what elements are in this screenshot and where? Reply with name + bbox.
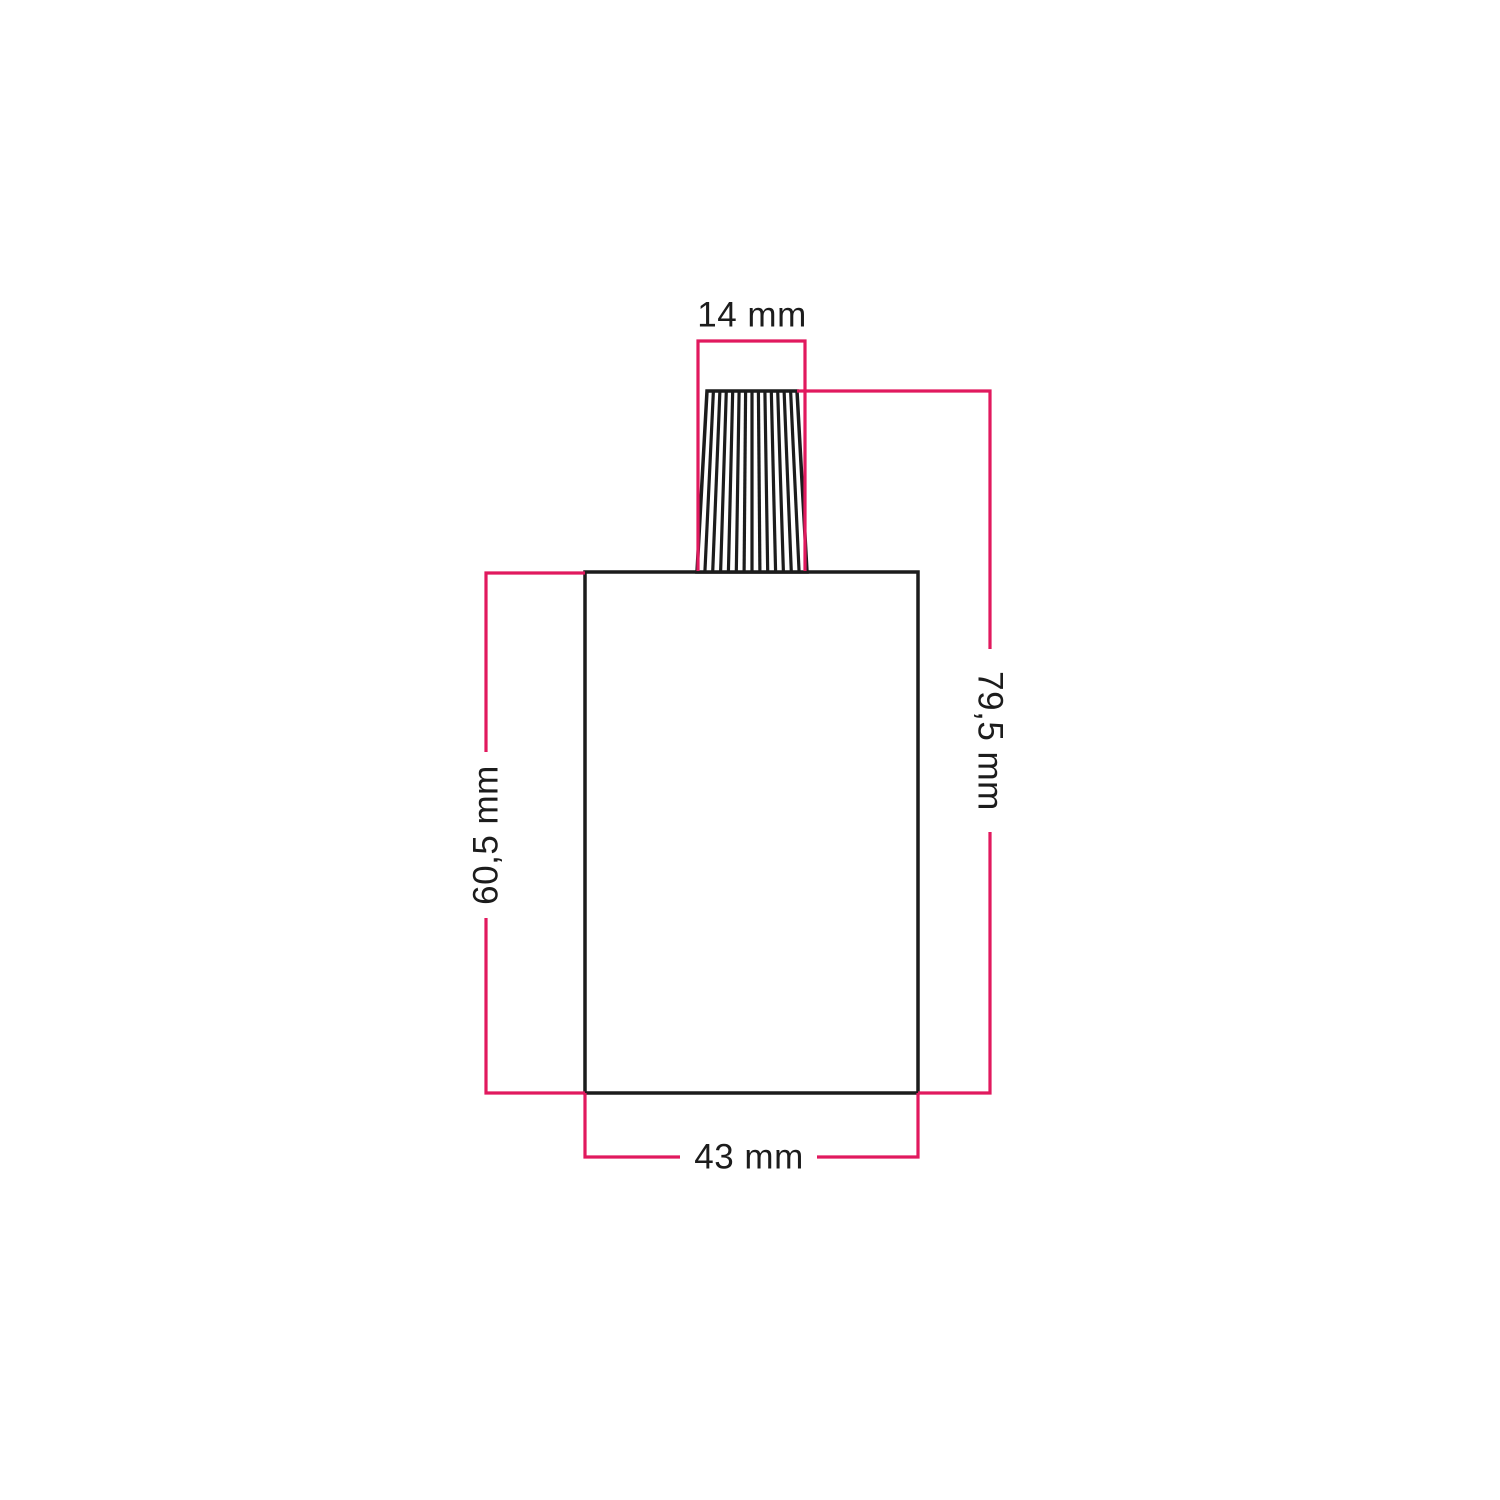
dimension-label-gland-width: 14 mm	[697, 296, 806, 335]
gland-rib-line	[758, 391, 760, 572]
dimension-label-body-height: 60,5 mm	[467, 765, 506, 905]
dimension-drawing: 14 mm 79,5 mm 60,5 mm 43 mm	[0, 0, 1500, 1500]
dimension-label-total-height: 79,5 mm	[971, 671, 1010, 811]
product-outline	[585, 391, 918, 1093]
gland-rib-line	[744, 391, 746, 572]
dimension-label-body-width: 43 mm	[694, 1138, 803, 1177]
diagram-canvas: 14 mm 79,5 mm 60,5 mm 43 mm	[0, 0, 1500, 1500]
lamp-holder-body-outline	[585, 572, 918, 1093]
